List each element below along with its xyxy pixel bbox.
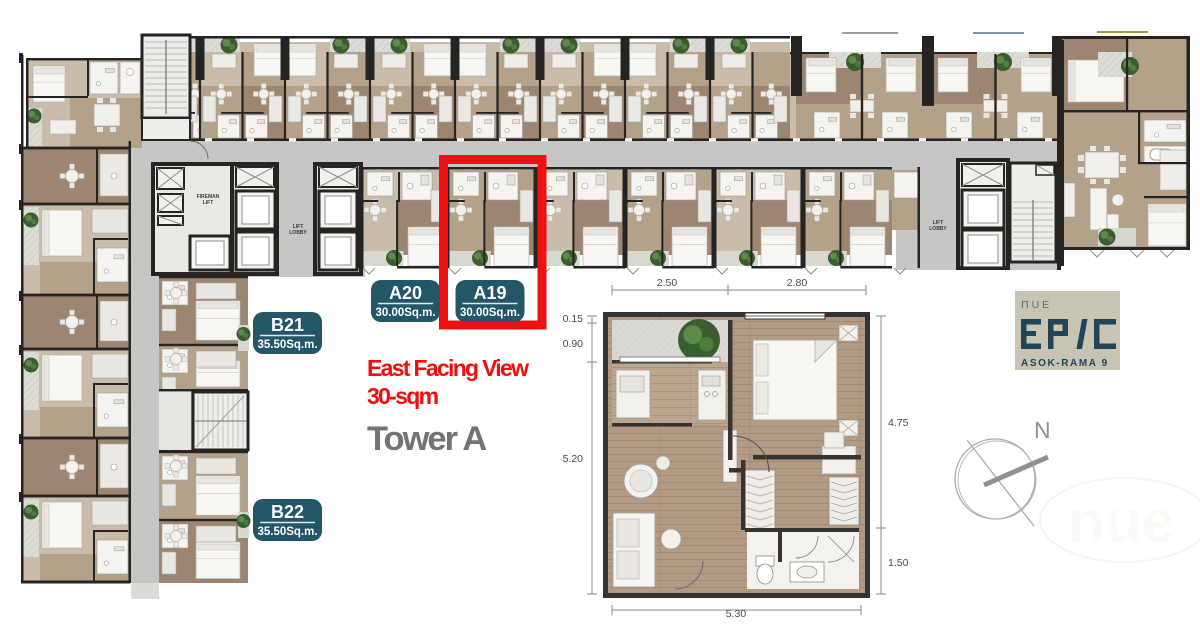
svg-text:30-sqm: 30-sqm [367,383,439,409]
svg-text:B21: B21 [271,315,304,335]
svg-text:A19: A19 [473,283,506,303]
svg-text:2.50: 2.50 [657,277,678,289]
svg-text:2.80: 2.80 [787,277,808,289]
svg-text:ASOK-RAMA 9: ASOK-RAMA 9 [1021,358,1109,369]
svg-text:N: N [1034,417,1051,443]
svg-text:35.50Sq.m.: 35.50Sq.m. [257,526,317,538]
svg-text:East Facing View: East Facing View [367,355,529,381]
svg-text:4.75: 4.75 [888,417,909,429]
svg-text:LOBBY: LOBBY [289,230,307,236]
svg-text:LOBBY: LOBBY [929,226,947,232]
svg-text:ΠUE: ΠUE [1021,299,1052,311]
svg-text:Tower A: Tower A [367,420,486,458]
svg-text:5.20: 5.20 [563,453,584,465]
svg-text:1.50: 1.50 [888,557,909,569]
svg-text:LIFT: LIFT [203,200,214,206]
svg-text:A20: A20 [389,283,422,303]
svg-text:0.90: 0.90 [563,338,584,350]
svg-text:5.30: 5.30 [726,608,747,620]
svg-text:nue: nue [1068,488,1175,555]
svg-text:30.00Sq.m.: 30.00Sq.m. [460,307,520,319]
svg-text:30.00Sq.m.: 30.00Sq.m. [375,307,435,319]
svg-text:B22: B22 [271,502,304,522]
svg-text:0.15: 0.15 [563,313,584,325]
svg-text:35.50Sq.m.: 35.50Sq.m. [257,339,317,351]
